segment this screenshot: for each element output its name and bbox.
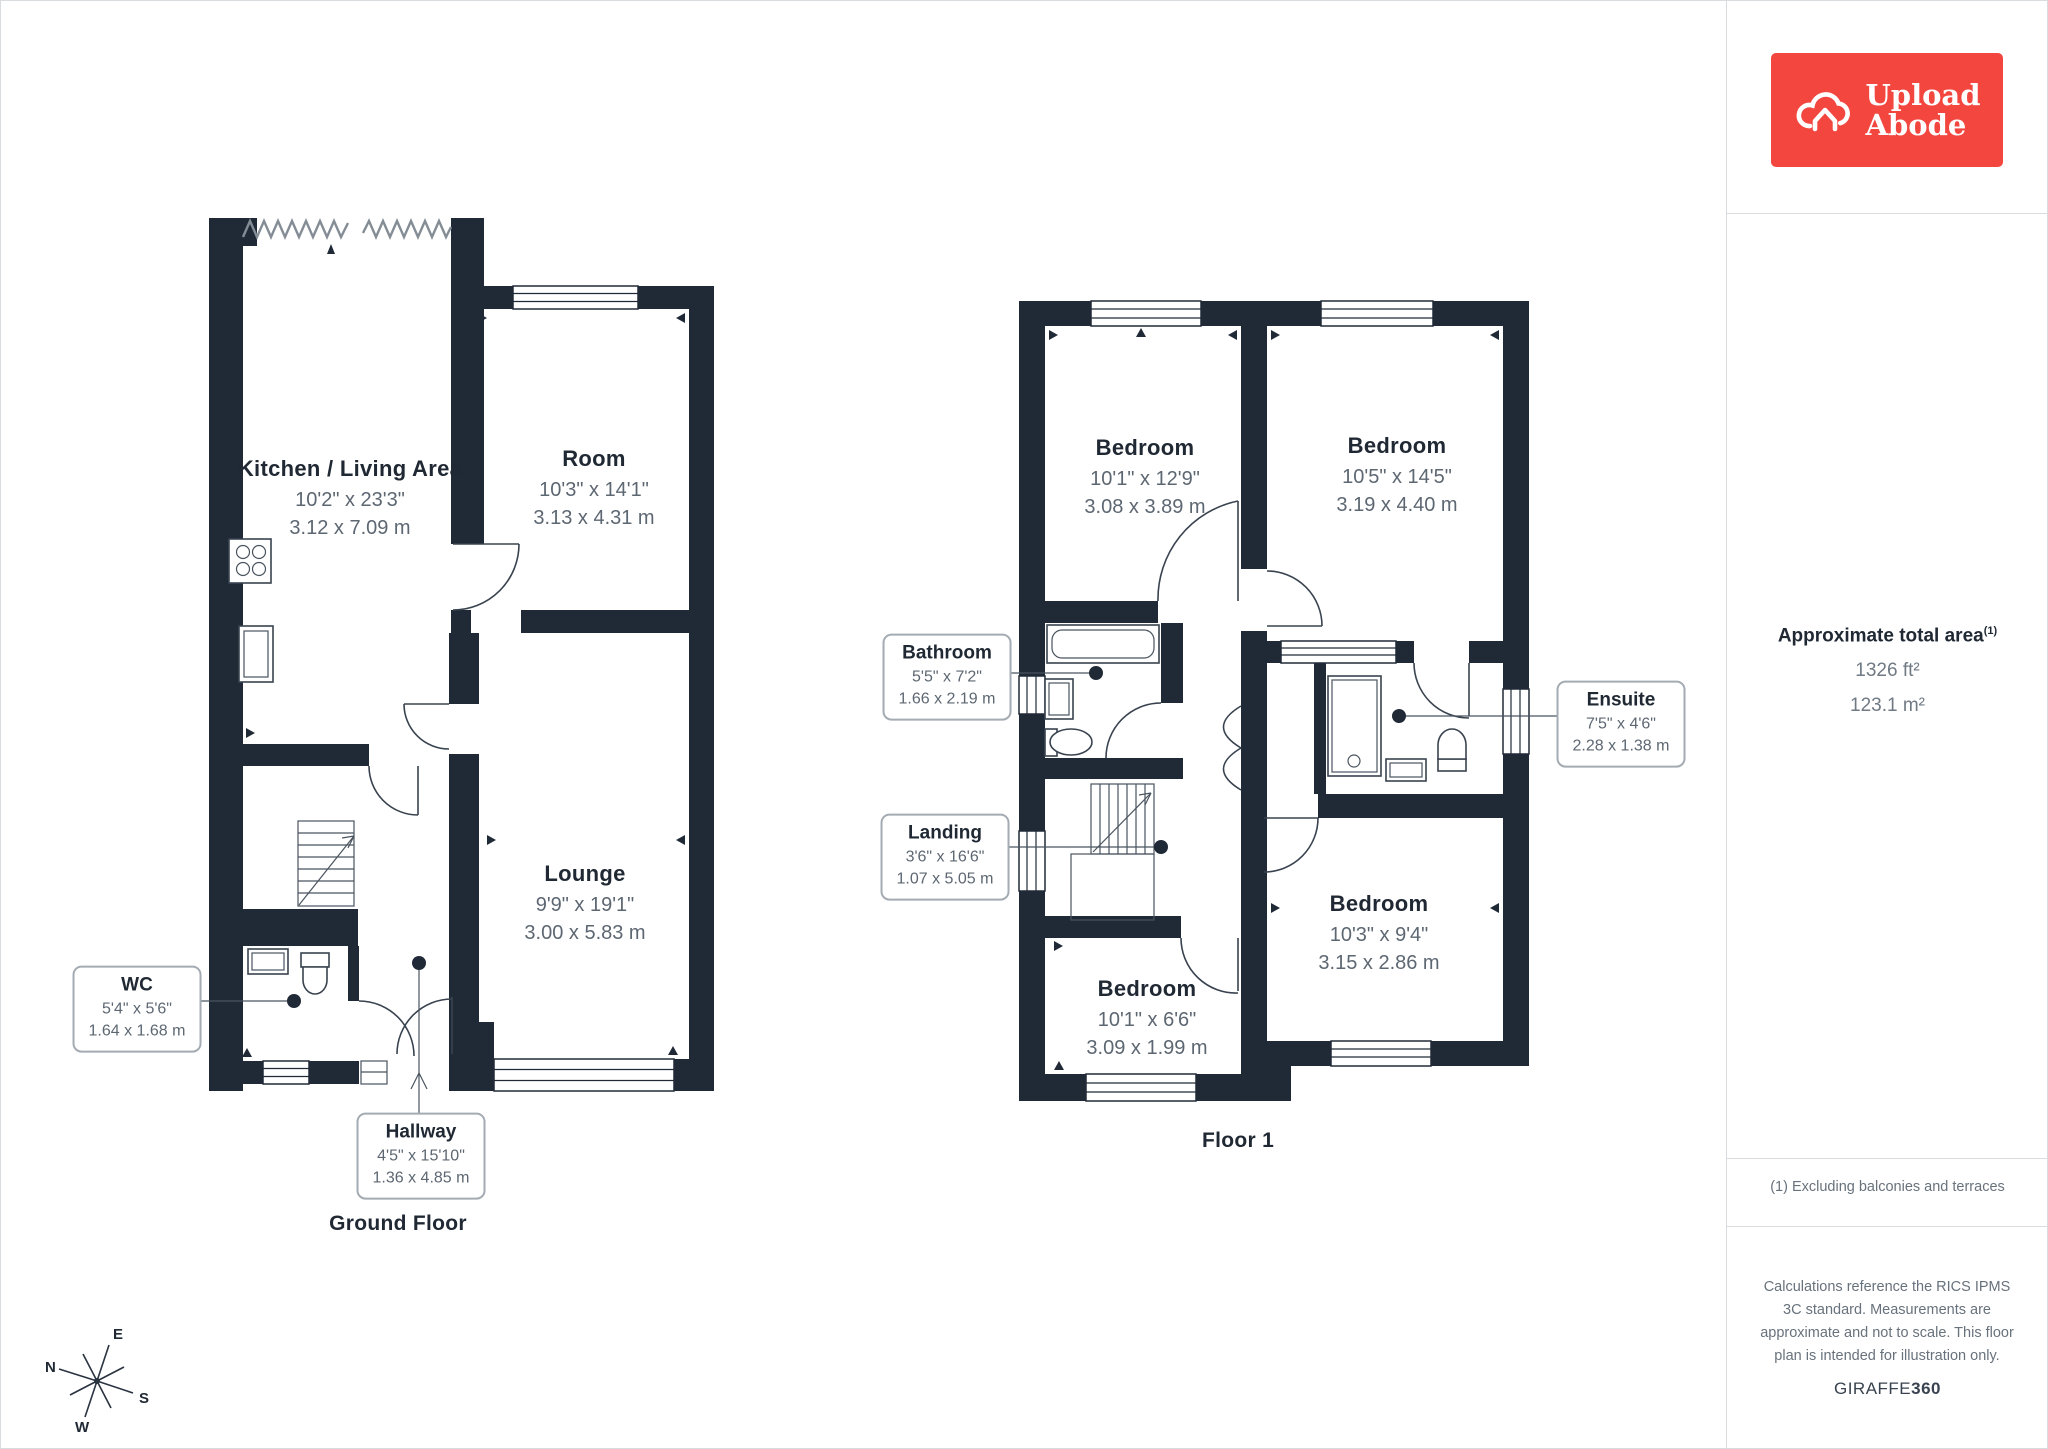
callout-dims: 5'4" x 5'6" 1.64 x 1.68 m [89,999,186,1044]
total-area-block: Approximate total area(1) 1326 ft² 123.1… [1727,625,2048,717]
total-area-m: 123.1 m² [1727,695,2048,717]
callout-dims: 4'5" x 15'10" 1.36 x 4.85 m [373,1146,470,1191]
room-dims: 10'1" x 12'9" 3.08 x 3.89 m [1084,465,1205,521]
room-label-kitchen: Kitchen / Living Area 10'2" x 23'3" 3.12… [238,456,462,542]
callout-dims: 3'6" x 16'6" 1.07 x 5.05 m [897,847,994,892]
area-footnote: (1) Excluding balconies and terraces [1727,1179,2048,1195]
first-floor-title: Floor 1 [1202,1129,1274,1153]
sidebar: Upload Abode Approximate total area(1) 1… [1726,1,2048,1448]
sidebar-divider [1727,213,2048,214]
compass-e: E [113,1326,123,1343]
room-name: Bedroom [1336,433,1457,459]
room-dims: 10'5" x 14'5" 3.19 x 4.40 m [1336,463,1457,519]
room-dims: 9'9" x 19'1" 3.00 x 5.83 m [524,891,645,947]
compass-n: N [45,1359,56,1376]
room-name: Kitchen / Living Area [238,456,462,482]
room-name: Bedroom [1084,435,1205,461]
callout-dims: 5'5" x 7'2" 1.66 x 2.19 m [899,667,996,712]
room-name: Bedroom [1318,891,1439,917]
floorplan-page: Kitchen / Living Area 10'2" x 23'3" 3.12… [0,0,2048,1449]
callout-name: Ensuite [1573,690,1670,712]
callout-wc: WC 5'4" x 5'6" 1.64 x 1.68 m [73,966,202,1053]
room-label-bedroom-se: Bedroom 10'3" x 9'4" 3.15 x 2.86 m [1318,891,1439,977]
cloud-upload-icon [1794,82,1856,138]
callout-dims: 7'5" x 4'6" 2.28 x 1.38 m [1573,714,1670,759]
sidebar-divider [1727,1226,2048,1227]
room-name: Bedroom [1086,976,1207,1002]
callout-hallway: Hallway 4'5" x 15'10" 1.36 x 4.85 m [357,1113,486,1200]
room-label-bedroom-ne: Bedroom 10'5" x 14'5" 3.19 x 4.40 m [1336,433,1457,519]
room-dims: 10'2" x 23'3" 3.12 x 7.09 m [238,486,462,542]
callout-name: Landing [897,823,994,845]
logo-wordmark: Upload Abode [1866,80,1981,141]
callout-name: Bathroom [899,643,996,665]
giraffe360-brand: GIRAFFE360 [1727,1379,2048,1399]
callout-landing: Landing 3'6" x 16'6" 1.07 x 5.05 m [881,814,1010,901]
room-label-bedroom-sw: Bedroom 10'1" x 6'6" 3.09 x 1.99 m [1086,976,1207,1062]
room-label-room: Room 10'3" x 14'1" 3.13 x 4.31 m [533,446,654,532]
room-dims: 10'3" x 9'4" 3.15 x 2.86 m [1318,921,1439,977]
room-label-bedroom-nw: Bedroom 10'1" x 12'9" 3.08 x 3.89 m [1084,435,1205,521]
callout-name: Hallway [373,1122,470,1144]
total-area-title: Approximate total area(1) [1727,625,2048,647]
compass-s: S [139,1390,149,1407]
callout-name: WC [89,975,186,997]
disclaimer-text: Calculations reference the RICS IPMS 3C … [1756,1276,2018,1368]
ground-floor-plan [191,206,751,1156]
room-dims: 10'1" x 6'6" 3.09 x 1.99 m [1086,1006,1207,1062]
callout-bathroom: Bathroom 5'5" x 7'2" 1.66 x 2.19 m [883,634,1012,721]
room-name: Lounge [524,861,645,887]
total-area-ft: 1326 ft² [1727,660,2048,682]
room-dims: 10'3" x 14'1" 3.13 x 4.31 m [533,476,654,532]
compass-w: W [75,1419,90,1436]
room-name: Room [533,446,654,472]
upload-abode-logo: Upload Abode [1771,53,2003,167]
callout-ensuite: Ensuite 7'5" x 4'6" 2.28 x 1.38 m [1557,681,1686,768]
compass-rose: N E S W [29,1313,169,1445]
ground-floor-title: Ground Floor [329,1212,467,1236]
room-label-lounge: Lounge 9'9" x 19'1" 3.00 x 5.83 m [524,861,645,947]
first-floor-plan [1001,291,1561,1141]
sidebar-divider [1727,1158,2048,1159]
